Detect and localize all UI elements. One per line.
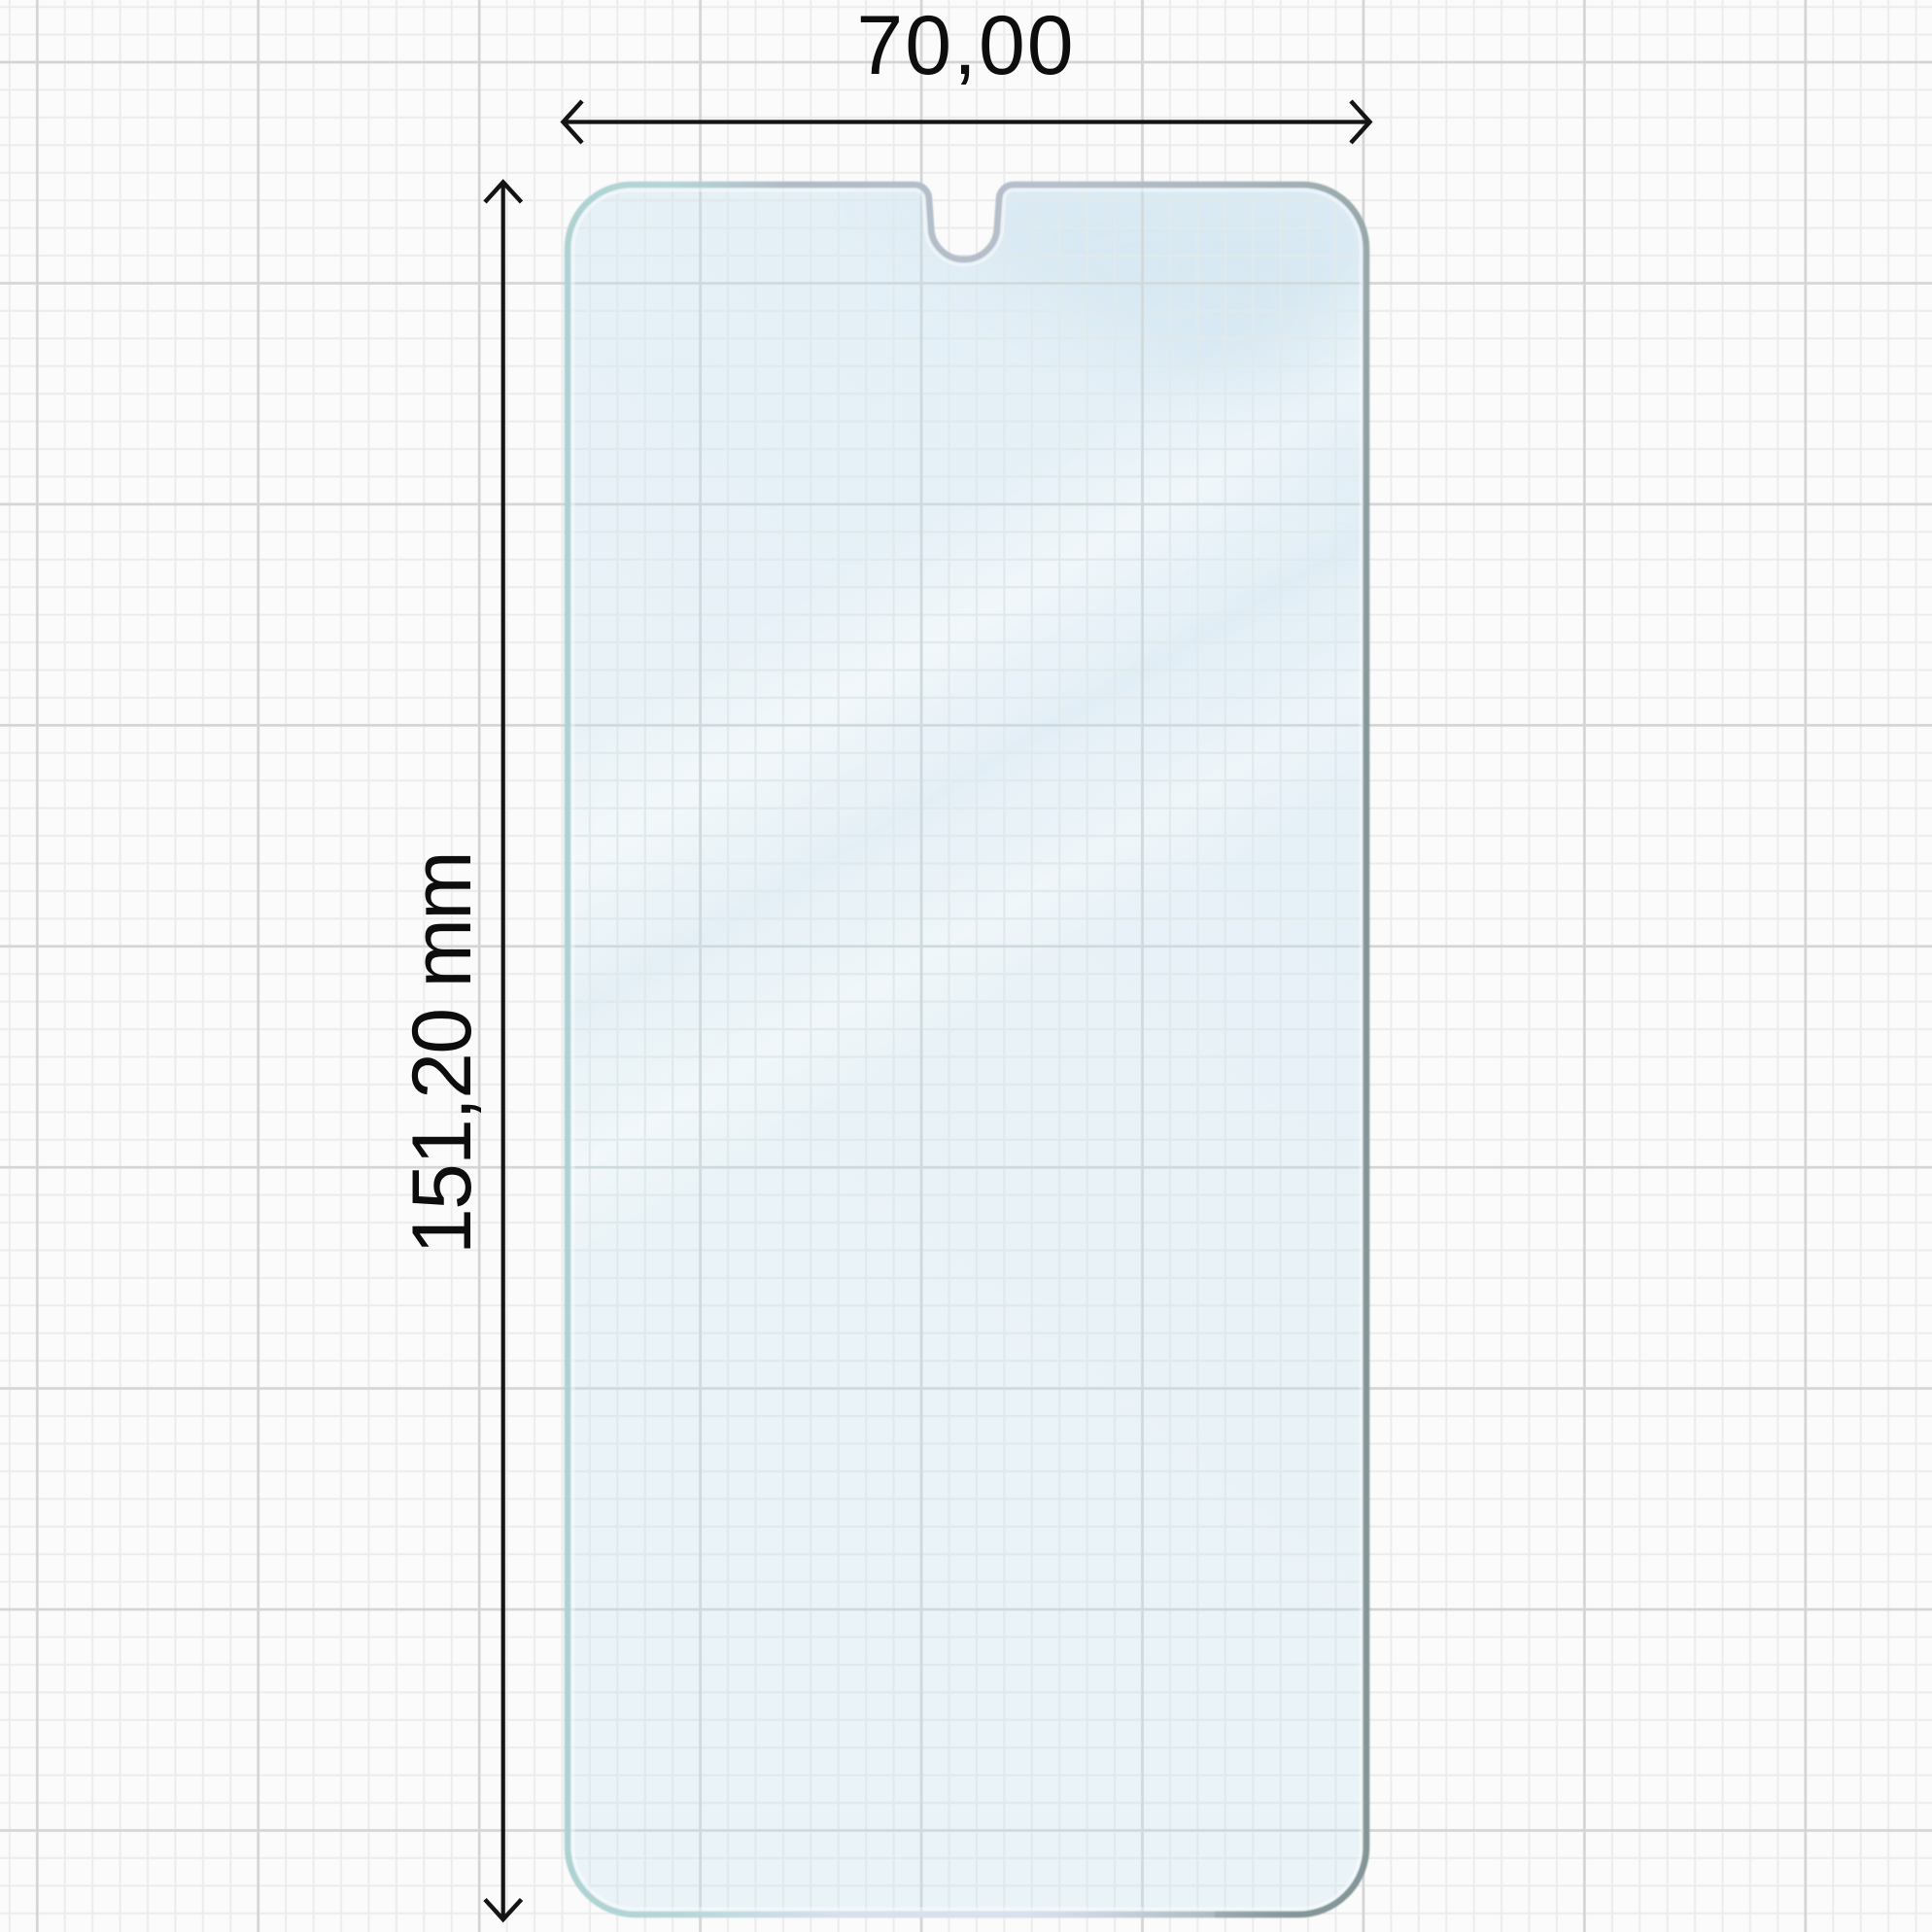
svg-text:70,00: 70,00	[856, 0, 1075, 92]
svg-text:151,20 mm: 151,20 mm	[396, 852, 489, 1255]
